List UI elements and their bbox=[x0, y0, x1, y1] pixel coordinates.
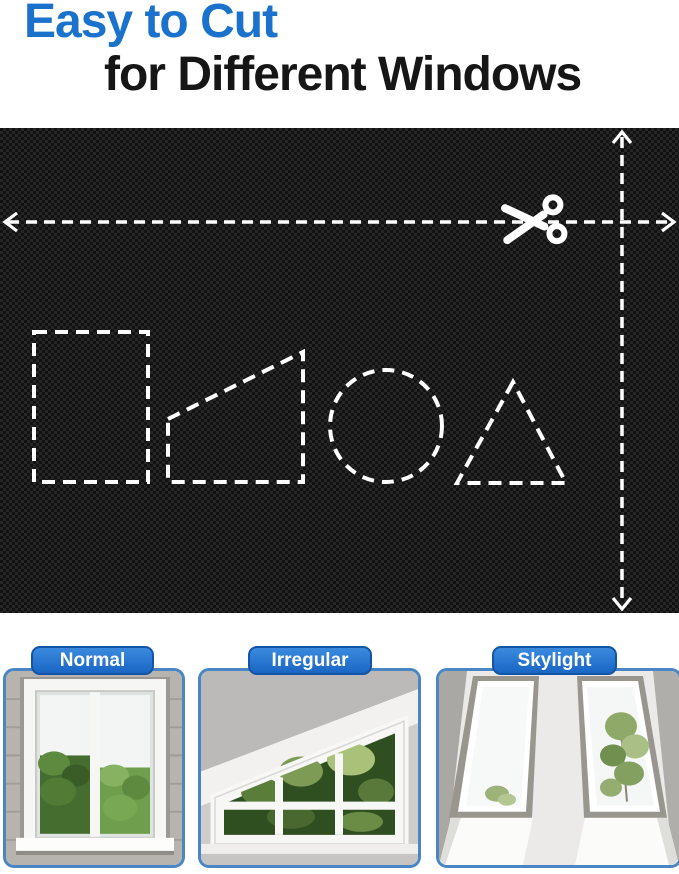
window-card-skylight bbox=[436, 668, 679, 868]
cut-shape-circle bbox=[330, 370, 442, 482]
window-card-normal bbox=[3, 668, 185, 868]
page-title-line2: for Different Windows bbox=[104, 47, 581, 102]
cut-shape-rectangle bbox=[34, 332, 148, 482]
normal-window-photo bbox=[6, 671, 182, 865]
cut-guides-graphic bbox=[0, 128, 679, 613]
window-type-badge-irregular: Irregular bbox=[248, 646, 372, 675]
window-card-irregular bbox=[198, 668, 421, 868]
vertical-cut-line bbox=[613, 132, 631, 609]
page-title-line1: Easy to Cut bbox=[24, 0, 277, 49]
skylight-window-photo bbox=[439, 671, 679, 865]
window-type-badge-normal: Normal bbox=[31, 646, 154, 675]
window-type-badge-skylight: Skylight bbox=[492, 646, 617, 675]
irregular-window-photo bbox=[201, 671, 418, 865]
arrow-down-icon bbox=[613, 598, 631, 609]
cut-shape-triangle bbox=[457, 382, 566, 483]
horizontal-cut-line bbox=[5, 213, 674, 231]
cut-shape-trapezoid bbox=[168, 352, 303, 482]
fabric-panel bbox=[0, 128, 679, 613]
